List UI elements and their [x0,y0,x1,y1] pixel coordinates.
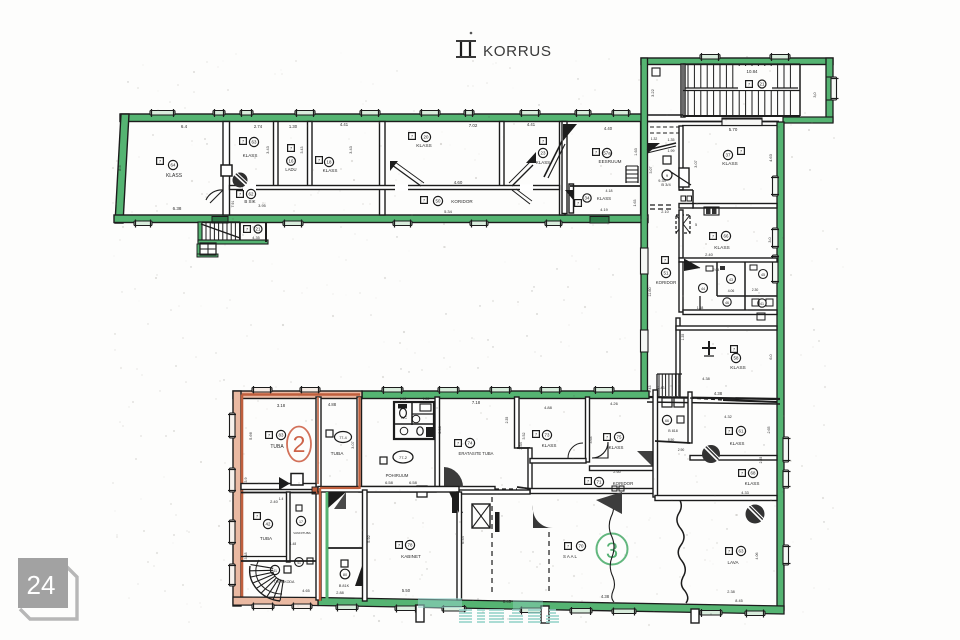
svg-text:10.84: 10.84 [747,69,759,74]
svg-text:21: 21 [760,82,765,87]
svg-text:3.52: 3.52 [522,433,526,440]
svg-text:4.38: 4.38 [702,377,709,381]
svg-text:8.5: 8.5 [117,164,122,170]
svg-text:KORIDOR: KORIDOR [656,280,677,285]
svg-text:1.35: 1.35 [668,138,675,142]
svg-text:2.30: 2.30 [752,288,759,292]
svg-text:6.0: 6.0 [769,354,773,359]
svg-text:45: 45 [761,273,765,277]
svg-text:2.10: 2.10 [661,210,668,214]
svg-text:3.18: 3.18 [277,403,286,408]
svg-text:7: 7 [740,150,742,154]
svg-text:7: 7 [741,472,743,476]
svg-text:7: 7 [567,545,569,549]
svg-text:4.40: 4.40 [604,126,613,131]
svg-text:5: 5 [695,223,697,227]
svg-text:4.06: 4.06 [755,553,759,560]
svg-text:7: 7 [411,135,413,139]
svg-text:KORIDOR: KORIDOR [613,481,634,486]
svg-text:41: 41 [273,569,277,573]
svg-text:74: 74 [468,441,473,446]
svg-text:4.63: 4.63 [768,153,773,162]
svg-text:1.99: 1.99 [668,149,675,153]
svg-text:6.4: 6.4 [181,124,188,129]
svg-text:6.44: 6.44 [461,536,465,543]
svg-text:17: 17 [299,520,303,524]
svg-text:KLASS: KLASS [722,161,737,167]
svg-text:1.48: 1.48 [400,397,407,401]
svg-text:3.43: 3.43 [266,146,270,153]
svg-text:7: 7 [712,235,714,239]
svg-text:1.63: 1.63 [633,200,637,207]
svg-text:7: 7 [728,430,730,434]
svg-text:S A A L: S A A L [563,554,577,559]
svg-text:43: 43 [729,278,733,282]
svg-text:4.60: 4.60 [454,180,463,185]
svg-text:TUBA: TUBA [270,444,284,450]
svg-text:5.70: 5.70 [729,127,738,132]
svg-text:KLASS: KLASS [416,143,431,149]
svg-text:61: 61 [739,429,744,434]
svg-text:4.26: 4.26 [610,401,619,406]
svg-text:6.58: 6.58 [409,480,418,485]
svg-text:80: 80 [343,573,347,577]
svg-text:POHIRUUM: POHIRUUM [386,473,409,478]
svg-text:23: 23 [541,151,546,156]
svg-text:7: 7 [606,436,608,440]
svg-text:8.50: 8.50 [668,438,675,442]
svg-text:18: 18 [327,160,332,165]
svg-text:3.0: 3.0 [768,237,772,242]
svg-text:7: 7 [242,140,244,144]
svg-text:51: 51 [664,271,669,276]
svg-text:37: 37 [726,153,731,158]
svg-text:3.07: 3.07 [694,160,698,167]
svg-text:3.63: 3.63 [589,437,593,444]
svg-text:41: 41 [297,561,301,565]
svg-text:1.35: 1.35 [681,334,685,341]
svg-text:KLASS: KLASS [542,443,557,448]
svg-text:1.63: 1.63 [634,148,638,155]
svg-text:63: 63 [739,549,744,554]
svg-text:2.38: 2.38 [727,590,734,594]
svg-text:1.28: 1.28 [423,397,430,401]
svg-text:70: 70 [579,544,584,549]
svg-text:2.74: 2.74 [254,124,263,129]
svg-text:7: 7 [457,442,459,446]
svg-text:7.91: 7.91 [231,201,235,208]
svg-text:ERATASITE TUBA: ERATASITE TUBA [459,451,494,456]
svg-text:7: 7 [542,140,544,144]
svg-text:KLASS: KLASS [730,441,745,446]
svg-text:5.92: 5.92 [367,535,371,542]
svg-text:7: 7 [728,550,730,554]
svg-text:TREPIKODA: TREPIKODA [274,580,295,584]
svg-text:5.50: 5.50 [402,588,411,593]
svg-text:44: 44 [701,287,705,291]
svg-text:KABINET: KABINET [401,554,421,559]
svg-text:KORRUS: KORRUS [483,43,552,60]
svg-text:EESRUUM: EESRUUM [599,159,622,164]
svg-text:3.54: 3.54 [519,442,523,449]
svg-text:KORIDOR: KORIDOR [451,199,473,204]
svg-text:B SIK: B SIK [244,199,255,204]
svg-text:4.35: 4.35 [252,236,259,240]
svg-text:7: 7 [595,151,597,155]
svg-text:50: 50 [436,199,441,204]
svg-text:3.07: 3.07 [649,167,653,174]
svg-text:3.9: 3.9 [244,478,248,483]
svg-text:TUBA: TUBA [331,451,345,457]
svg-text:1.30: 1.30 [289,124,298,129]
svg-text:83: 83 [279,433,284,438]
svg-text:2.40: 2.40 [270,499,279,504]
svg-text:B 818: B 818 [668,429,677,433]
svg-text:2.40: 2.40 [705,252,714,257]
svg-text:7: 7 [587,480,589,484]
svg-text:66: 66 [724,234,729,239]
svg-text:2.04: 2.04 [713,268,720,272]
svg-text:4.38: 4.38 [714,391,723,396]
svg-text:78: 78 [408,543,413,548]
svg-text:KLASS: KLASS [243,153,258,158]
svg-text:4.18: 4.18 [606,189,613,193]
svg-text:2: 2 [293,431,306,457]
svg-text:2.35: 2.35 [759,457,763,464]
svg-text:4.65: 4.65 [302,589,309,593]
svg-text:8.45: 8.45 [503,599,512,604]
svg-text:VANNITUBA: VANNITUBA [293,531,311,535]
svg-text:3.95: 3.95 [258,204,265,208]
svg-text:KLASS: KLASS [714,245,729,251]
svg-text:57a: 57a [603,151,611,156]
svg-text:77-2: 77-2 [399,455,408,460]
svg-text:4.41: 4.41 [340,122,349,127]
svg-text:TUBA: TUBA [260,536,273,541]
svg-text:63: 63 [252,140,257,145]
svg-text:3.07: 3.07 [351,441,355,448]
svg-text:5.34: 5.34 [444,209,453,214]
svg-text:71: 71 [597,480,602,485]
svg-text:4.06: 4.06 [728,289,735,293]
svg-text:KLASS: KLASS [609,445,624,450]
svg-text:73: 73 [545,433,550,438]
svg-text:46: 46 [725,301,729,305]
svg-text:7: 7 [748,83,750,87]
svg-text:2.90: 2.90 [678,448,685,452]
svg-text:41: 41 [760,302,764,306]
svg-text:7: 7 [664,259,666,263]
svg-text:7: 7 [733,348,735,352]
svg-text:20: 20 [424,135,429,140]
svg-text:64: 64 [171,163,176,168]
svg-text:2.88: 2.88 [336,591,343,595]
svg-text:7: 7 [290,147,292,151]
svg-text:7: 7 [535,433,537,437]
svg-text:3.43: 3.43 [300,147,304,154]
svg-text:7: 7 [159,160,161,164]
svg-text:B 3/4: B 3/4 [661,182,671,187]
svg-text:KLASS: KLASS [597,196,611,201]
svg-text:6.58: 6.58 [385,480,394,485]
svg-text:KLASS: KLASS [166,173,183,179]
svg-text:7: 7 [423,199,425,203]
svg-text:4.33: 4.33 [741,491,748,495]
svg-text:2.43: 2.43 [658,386,665,390]
svg-text:1.32: 1.32 [651,137,658,141]
svg-text:8.45: 8.45 [735,599,742,603]
svg-text:KLASS: KLASS [536,160,550,165]
svg-text:4.88: 4.88 [328,402,337,407]
svg-text:B 81K: B 81K [339,584,350,588]
svg-text:LAVA: LAVA [727,560,739,565]
svg-text:34: 34 [585,196,590,201]
svg-text:1.68: 1.68 [697,306,704,310]
svg-text:3: 3 [606,538,618,563]
svg-text:3.43: 3.43 [349,146,353,153]
svg-text:7: 7 [239,193,241,197]
svg-text:5.66: 5.66 [248,431,253,440]
svg-text:4.19: 4.19 [600,208,607,212]
svg-text:4.38: 4.38 [601,594,610,599]
svg-text:4.88: 4.88 [544,405,553,410]
svg-text:WC: WC [401,416,408,420]
svg-text:7: 7 [268,434,270,438]
svg-text:1.48: 1.48 [290,542,296,546]
svg-text:21: 21 [256,227,261,232]
svg-text:KLASS: KLASS [730,365,745,371]
svg-text:24: 24 [27,570,56,600]
svg-text:2.35: 2.35 [505,417,509,424]
svg-text:11.60: 11.60 [648,287,652,296]
svg-text:62: 62 [249,192,254,197]
svg-text:7: 7 [246,228,248,232]
svg-text:77-4: 77-4 [339,436,347,440]
svg-text:7: 7 [398,544,400,548]
svg-text:7.02: 7.02 [469,123,478,128]
svg-text:75: 75 [617,435,622,440]
svg-text:3.53: 3.53 [438,426,442,433]
svg-text:66: 66 [665,419,669,423]
svg-text:58: 58 [734,356,739,361]
svg-text:6.38: 6.38 [173,206,182,211]
svg-text:7: 7 [256,515,258,519]
svg-text:4.32: 4.32 [724,415,731,419]
svg-text:KLASS: KLASS [745,481,760,486]
svg-text:3.18: 3.18 [244,553,248,560]
svg-text:7.18: 7.18 [472,400,481,405]
svg-text:3.22: 3.22 [650,88,655,97]
svg-text:2.65: 2.65 [767,427,771,434]
svg-text:42: 42 [266,522,271,527]
svg-text:16: 16 [289,159,294,164]
svg-text:68: 68 [751,471,756,476]
svg-text:7: 7 [577,202,579,206]
svg-text:7: 7 [318,159,320,163]
svg-text:LADU: LADU [285,167,296,172]
svg-text:KLASS: KLASS [323,168,338,173]
svg-text:2.60: 2.60 [613,470,620,474]
svg-text:4.41: 4.41 [527,122,536,127]
